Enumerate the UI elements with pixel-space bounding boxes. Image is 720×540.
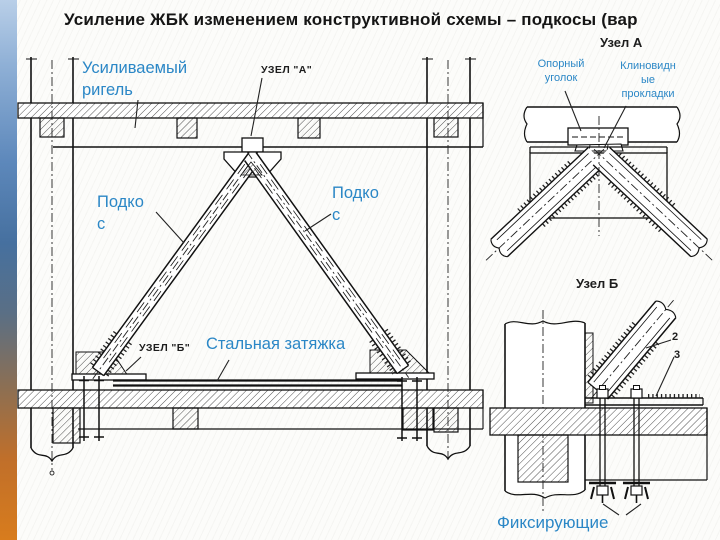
label-strut-left: Подко с (97, 192, 144, 236)
node-b-heading: Узел Б (576, 276, 618, 291)
label-reinforced-girder: Усиливаемый ригель (82, 58, 187, 102)
node-a-detail-diagram (476, 91, 720, 271)
label-fixing: Фиксирующие (497, 512, 609, 534)
main-structural-diagram (18, 57, 483, 475)
slide-title: Усиление ЖБК изменением конструктивной с… (64, 10, 638, 30)
label-support-angle: Опорный уголок (516, 58, 606, 86)
label-node-b-callout: УЗЕЛ "Б" (139, 342, 190, 354)
label-steel-tie: Стальная затяжка (206, 334, 345, 356)
callout-number-3: 3 (674, 349, 680, 361)
node-a-heading: Узел А (600, 35, 642, 50)
callout-number-2: 2 (672, 331, 678, 343)
label-strut-right: Подко с (332, 183, 379, 227)
label-node-a-callout: УЗЕЛ "А" (261, 64, 312, 76)
slide: Усиление ЖБК изменением конструктивной с… (0, 0, 720, 540)
label-wedge-shims: Клиновидн ые прокладки (610, 60, 686, 101)
node-b-detail-diagram (490, 290, 707, 515)
